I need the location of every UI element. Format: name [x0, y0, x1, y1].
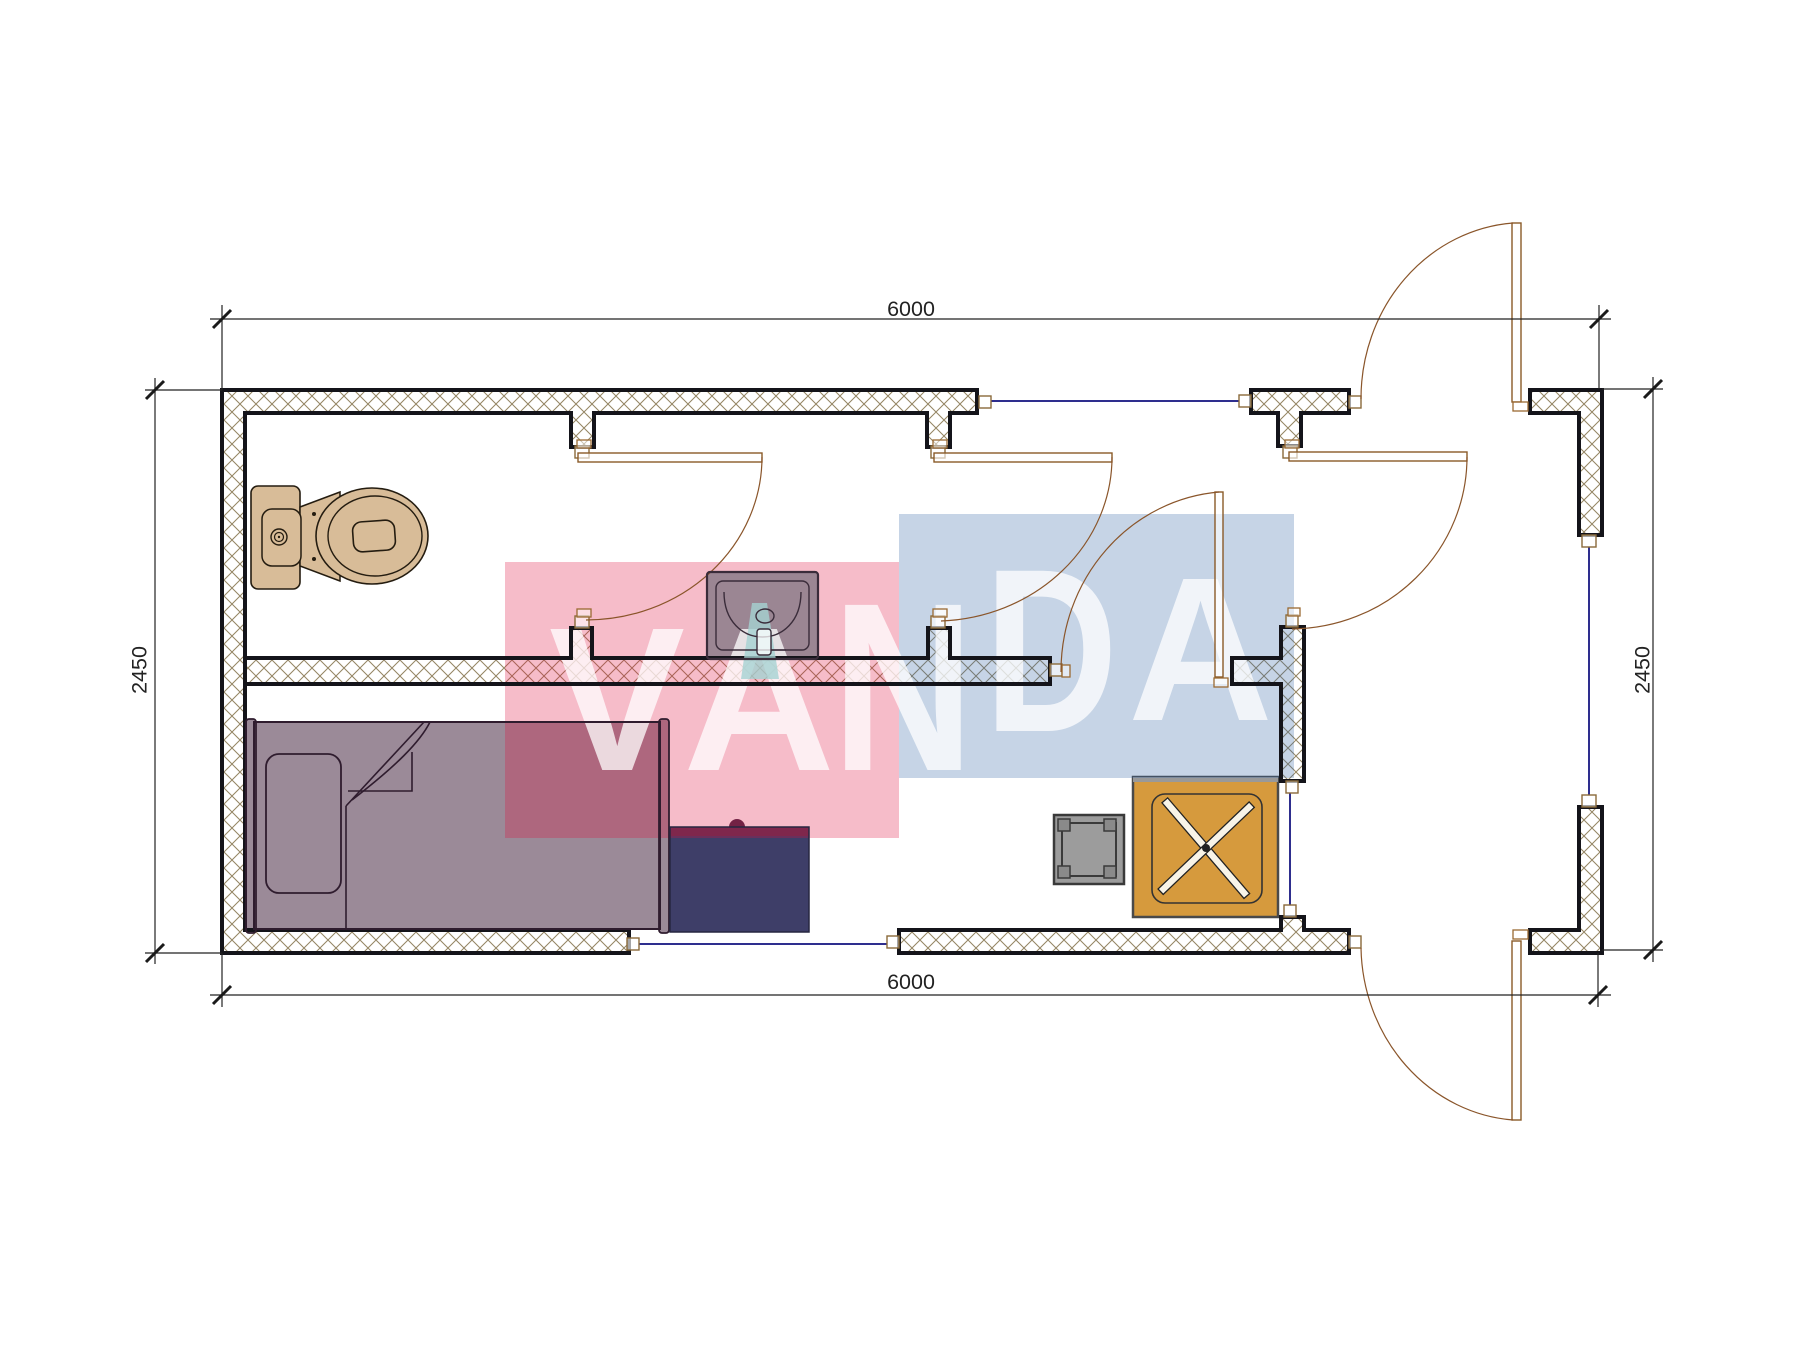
svg-text:N: N	[832, 553, 974, 821]
svg-text:6000: 6000	[887, 297, 935, 321]
svg-text:6000: 6000	[887, 970, 935, 994]
svg-text:2450: 2450	[1631, 646, 1655, 694]
svg-text:A: A	[1128, 535, 1273, 764]
svg-text:V: V	[549, 585, 685, 814]
svg-text:2450: 2450	[128, 646, 152, 694]
